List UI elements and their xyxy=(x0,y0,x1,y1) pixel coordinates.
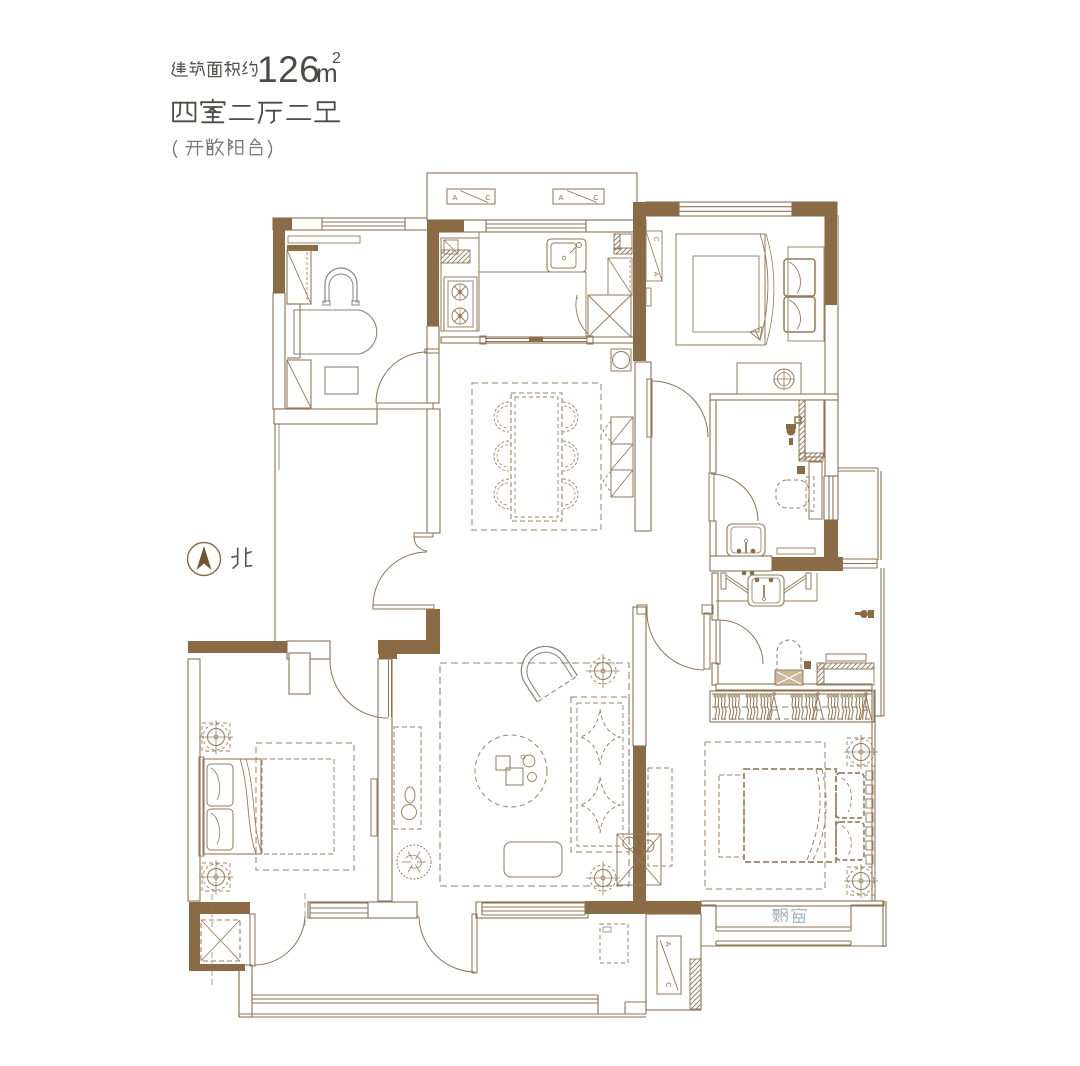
svg-text:A: A xyxy=(664,941,673,946)
svg-text:2: 2 xyxy=(332,50,341,67)
svg-text:A: A xyxy=(452,193,457,202)
svg-text:C: C xyxy=(593,193,599,202)
svg-text:C: C xyxy=(652,236,659,241)
svg-text:126: 126 xyxy=(257,49,320,90)
svg-text:C: C xyxy=(664,982,673,988)
svg-text:A: A xyxy=(558,193,563,202)
svg-text:A: A xyxy=(652,272,659,277)
svg-text:C: C xyxy=(485,193,491,202)
